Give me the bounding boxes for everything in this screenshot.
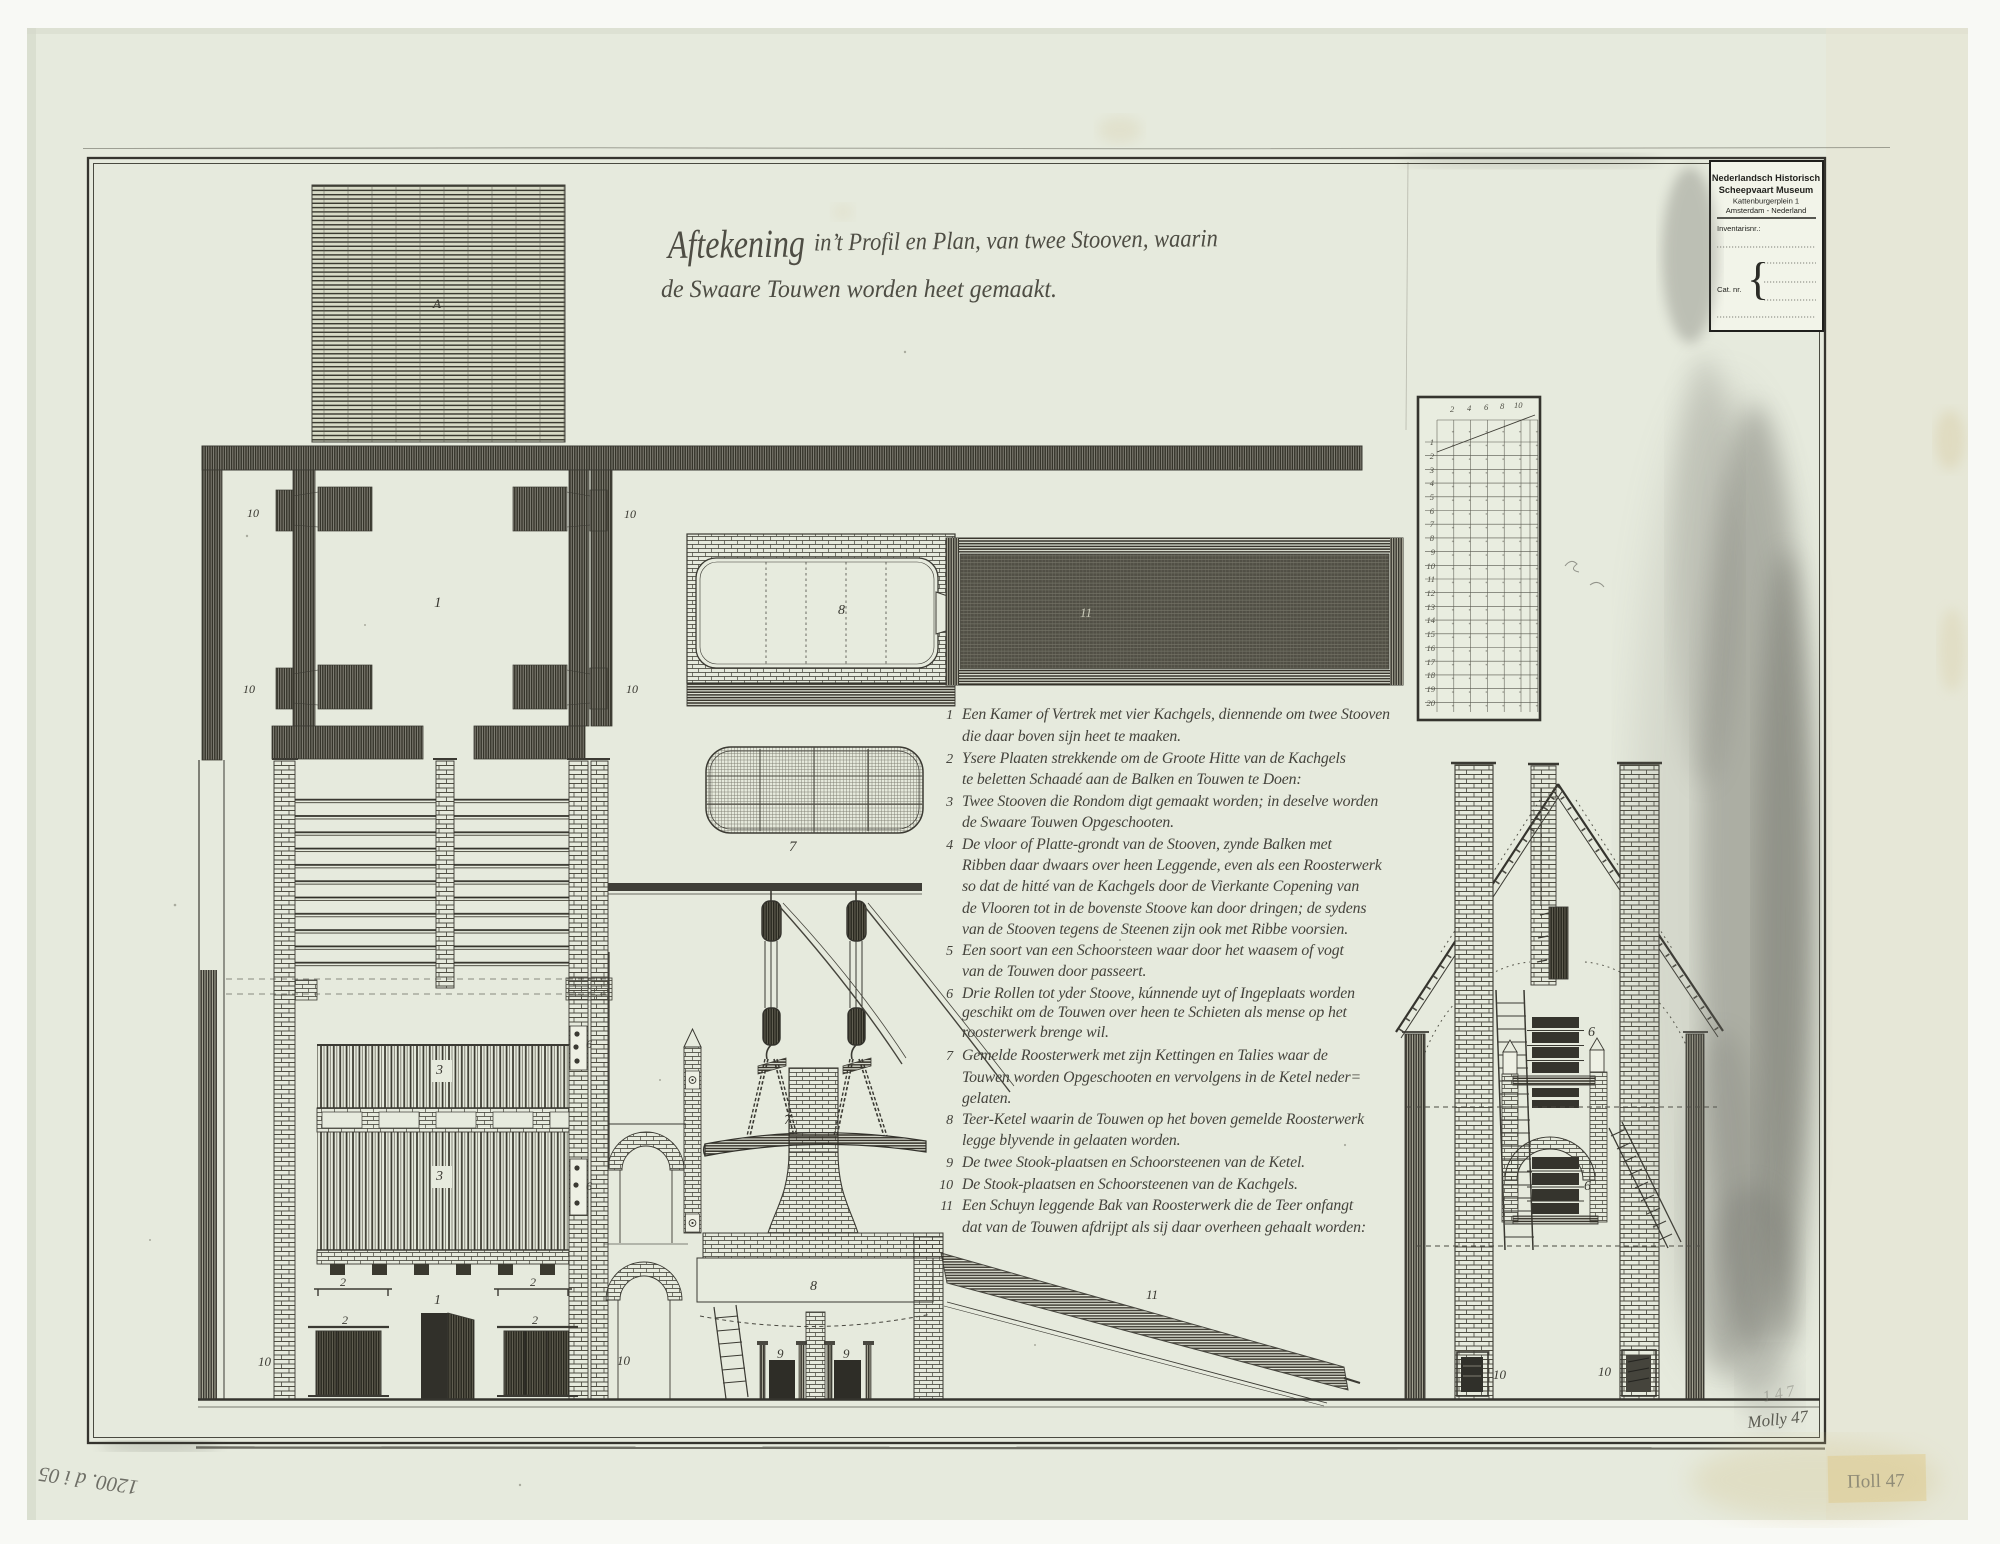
svg-text:8: 8	[946, 1113, 953, 1128]
svg-text:1: 1	[1430, 437, 1434, 447]
svg-text:5: 5	[946, 944, 953, 959]
svg-text:10: 10	[1514, 400, 1523, 410]
svg-text:Aftekening: Aftekening	[665, 221, 805, 267]
svg-text:6: 6	[1584, 1179, 1591, 1194]
svg-text:A: A	[432, 296, 441, 311]
svg-text:Cat. nr.: Cat. nr.	[1717, 285, 1741, 294]
svg-text:gelaten.: gelaten.	[962, 1090, 1011, 1107]
svg-text:10: 10	[939, 1178, 953, 1193]
svg-text:in’t Profil en Plan, van twee: in’t Profil en Plan, van twee Stooven, w…	[814, 225, 1218, 256]
svg-text:6: 6	[946, 987, 953, 1002]
svg-text:17: 17	[1427, 657, 1436, 667]
svg-text:10: 10	[243, 682, 255, 696]
svg-text:{: {	[1747, 253, 1769, 304]
svg-text:de Swaare Touwen worden heet g: de Swaare Touwen worden heet gemaakt.	[661, 276, 1057, 303]
svg-text:3: 3	[435, 1063, 443, 1078]
svg-text:geschikt om de Touwen over hee: geschikt om de Touwen over heen te Schie…	[962, 1004, 1348, 1021]
svg-text:10: 10	[1427, 561, 1436, 571]
svg-text:9: 9	[777, 1346, 784, 1361]
svg-text:12: 12	[1427, 588, 1436, 598]
svg-text:2: 2	[530, 1275, 536, 1289]
svg-text:3: 3	[435, 1169, 443, 1184]
svg-text:4: 4	[946, 838, 953, 853]
svg-text:8: 8	[810, 1279, 817, 1294]
svg-text:Ribben daar dwaars over heen L: Ribben daar dwaars over heen Leggende, e…	[961, 857, 1383, 874]
svg-text:De vloor of Platte-grondt van: De vloor of Platte-grondt van de Stooven…	[961, 836, 1332, 853]
svg-text:Amsterdam - Nederland: Amsterdam - Nederland	[1726, 206, 1807, 215]
svg-text:Inventarisnr.:: Inventarisnr.:	[1717, 224, 1760, 233]
svg-text:10: 10	[247, 506, 259, 520]
svg-text:1: 1	[434, 595, 442, 611]
svg-text:die daar boven sijn heet te ma: die daar boven sijn heet te maaken.	[962, 728, 1181, 745]
svg-text:14: 14	[1427, 615, 1436, 625]
svg-text:10: 10	[626, 682, 638, 696]
svg-text:3: 3	[1429, 465, 1434, 475]
svg-text:16: 16	[1427, 643, 1436, 653]
svg-text:Kattenburgerplein 1: Kattenburgerplein 1	[1733, 197, 1799, 206]
svg-text:15: 15	[1427, 629, 1436, 639]
svg-text:11: 11	[1080, 605, 1092, 620]
svg-text:6: 6	[1588, 1025, 1595, 1040]
svg-text:11: 11	[940, 1199, 953, 1214]
svg-text:5: 5	[1430, 492, 1434, 502]
svg-text:Ysere Plaaten strekkende om de: Ysere Plaaten strekkende om de Groote Hi…	[962, 750, 1346, 767]
svg-text:20: 20	[1427, 698, 1436, 708]
svg-text:2: 2	[946, 752, 953, 767]
svg-text:Een soort van een Schoorsteen: Een soort van een Schoorsteen waar door …	[961, 942, 1345, 959]
svg-text:Nederlandsch Historisch: Nederlandsch Historisch	[1712, 173, 1821, 183]
svg-text:legge blyvende in gelaaten wor: legge blyvende in gelaaten worden.	[962, 1132, 1180, 1149]
svg-text:19: 19	[1427, 684, 1436, 694]
svg-text:6: 6	[586, 1037, 592, 1051]
svg-text:3: 3	[945, 795, 953, 810]
svg-text:11: 11	[1146, 1287, 1158, 1302]
svg-text:Gemelde Roosterwerk met zijn K: Gemelde Roosterwerk met zijn Kettingen e…	[962, 1047, 1328, 1064]
svg-text:18: 18	[1427, 670, 1436, 680]
svg-text:2: 2	[532, 1313, 538, 1327]
svg-text:13: 13	[1427, 602, 1436, 612]
svg-text:Teer-Ketel waarin de Touwen op: Teer-Ketel waarin de Touwen op het boven…	[962, 1111, 1365, 1128]
svg-text:1: 1	[434, 1293, 441, 1308]
svg-text:Touwen worden Opgeschooten en: Touwen worden Opgeschooten en vervolgens…	[962, 1069, 1361, 1086]
svg-text:van de Stooven tegens de Steen: van de Stooven tegens de Steenen zijn oo…	[962, 921, 1348, 938]
svg-text:9: 9	[946, 1156, 953, 1171]
svg-text:Een Kamer of Vertrek met vier: Een Kamer of Vertrek met vier Kachgels, …	[961, 706, 1390, 723]
svg-text:roosterwerk brenge wil.: roosterwerk brenge wil.	[962, 1024, 1109, 1041]
svg-text:so dat de hitté van de Kachgel: so dat de hitté van de Kachgels door de …	[962, 878, 1359, 895]
svg-text:7: 7	[784, 1113, 792, 1128]
svg-text:Scheepvaart Museum: Scheepvaart Museum	[1719, 185, 1813, 195]
svg-text:de Swaare Touwen Opgeschooten.: de Swaare Touwen Opgeschooten.	[962, 814, 1174, 831]
svg-text:10: 10	[617, 1353, 631, 1368]
svg-text:6: 6	[586, 1179, 592, 1193]
svg-text:2: 2	[340, 1275, 346, 1289]
svg-text:9: 9	[843, 1346, 850, 1361]
svg-text:Drie Rollen tot yder Stoove, k: Drie Rollen tot yder Stoove, kúnnende uy…	[961, 985, 1355, 1002]
svg-text:De Stook-plaatsen en Schoorste: De Stook-plaatsen en Schoorsteenen van d…	[961, 1176, 1298, 1193]
svg-text:1: 1	[946, 708, 953, 723]
svg-text:10: 10	[1493, 1367, 1507, 1382]
svg-text:7: 7	[946, 1049, 954, 1064]
svg-text:10: 10	[258, 1354, 272, 1369]
svg-text:2: 2	[342, 1313, 348, 1327]
svg-text:10: 10	[1598, 1364, 1612, 1379]
svg-text:Twee Stooven die Rondom digt g: Twee Stooven die Rondom digt gemaakt wor…	[962, 793, 1378, 810]
svg-text:dat van de Touwen afdrijpt als: dat van de Touwen afdrijpt als sij daar …	[962, 1219, 1366, 1236]
svg-text:Een Schuyn leggende Bak van Ro: Een Schuyn leggende Bak van Roosterwerk …	[961, 1197, 1354, 1214]
svg-text:de Vlooren tot in de bovenste: de Vlooren tot in de bovenste Stoove kan…	[962, 900, 1366, 917]
svg-text:8: 8	[838, 603, 845, 618]
svg-text:te beletten Schaadé aan de Bal: te beletten Schaadé aan de Balken en Tou…	[962, 771, 1302, 788]
svg-text:10: 10	[624, 507, 636, 521]
svg-text:De twee Stook-plaatsen en Scho: De twee Stook-plaatsen en Schoorsteenen …	[961, 1154, 1305, 1171]
svg-text:11: 11	[1427, 574, 1435, 584]
svg-text:van de Touwen door passeert.: van de Touwen door passeert.	[962, 963, 1146, 980]
